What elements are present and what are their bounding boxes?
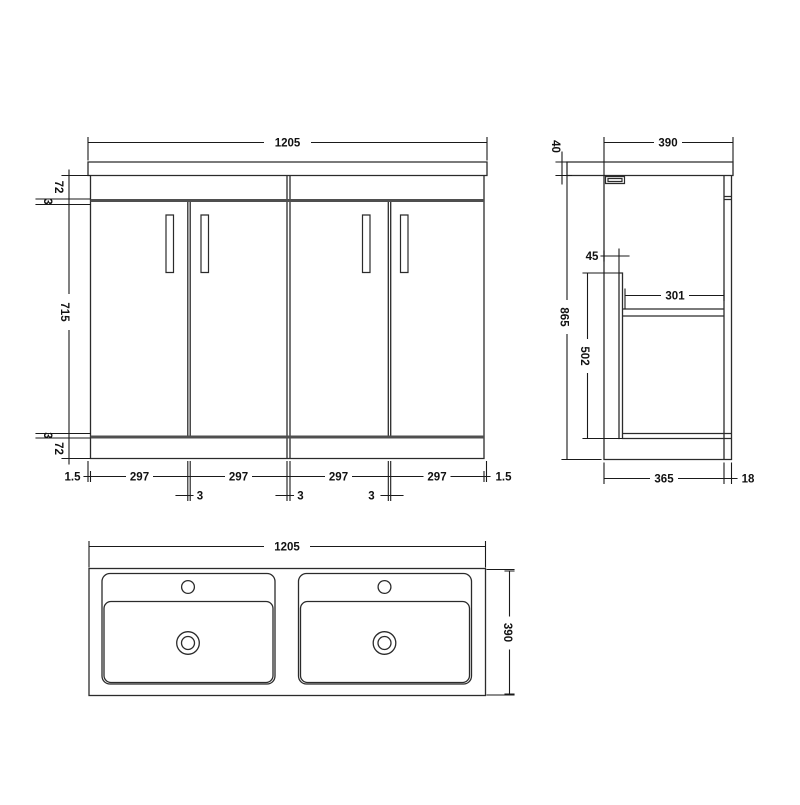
dim-front-edge-left: 1.5 xyxy=(65,472,82,484)
dim-side-cabinet-depth: 365 xyxy=(654,474,674,486)
dim-front-gap-bottom: 3 xyxy=(41,432,53,438)
dim-front-edge-right: 1.5 xyxy=(496,472,513,484)
plan-view: 1205 390 xyxy=(89,540,515,696)
dim-side-worktop-thickness: 40 xyxy=(549,140,561,153)
dim-side-back-panel: 18 xyxy=(742,474,755,486)
dim-side-shelf-depth: 301 xyxy=(665,291,685,303)
dim-front-door-gap-1: 3 xyxy=(197,491,203,503)
side-dimension-lines xyxy=(556,138,737,484)
dim-front-door-width-4: 297 xyxy=(427,472,446,484)
dim-front-door-height: 715 xyxy=(58,302,70,322)
dim-plan-width: 1205 xyxy=(274,542,300,554)
dim-front-door-gap-3: 3 xyxy=(368,491,374,503)
plan-bowl-left xyxy=(104,602,273,683)
front-dim-text-backgrounds xyxy=(58,140,451,484)
drawing-canvas: 1205 72 3 715 3 72 1.5 297 297 297 297 1… xyxy=(0,0,800,800)
dim-front-top-rail: 72 xyxy=(52,181,64,194)
plan-tap-hole-right xyxy=(378,581,391,594)
side-section-view: 390 40 865 45 301 502 365 18 xyxy=(549,138,755,486)
dim-plan-depth: 390 xyxy=(501,623,513,642)
front-elevation-view: 1205 72 3 715 3 72 1.5 297 297 297 297 1… xyxy=(36,138,512,503)
side-cabinet-outline xyxy=(567,162,733,460)
front-dimension-lines xyxy=(36,138,490,501)
dim-front-door-width-2: 297 xyxy=(229,472,248,484)
dim-side-internal-height: 502 xyxy=(578,346,590,365)
dim-front-plinth: 72 xyxy=(52,442,64,455)
plan-drain-outer-right xyxy=(373,632,396,655)
side-handle-profile xyxy=(606,177,625,184)
dim-front-gap-top: 3 xyxy=(41,198,53,204)
dim-front-door-width-1: 297 xyxy=(130,472,149,484)
dim-side-overall-height: 865 xyxy=(558,307,570,327)
plan-bowl-right xyxy=(301,602,470,683)
front-cabinet-outline xyxy=(88,162,487,459)
plan-drain-outer-left xyxy=(177,632,200,655)
dim-front-width: 1205 xyxy=(275,138,301,150)
plan-worktop-outline xyxy=(89,569,486,696)
plan-drain-inner-right xyxy=(378,637,391,650)
plan-drain-inner-left xyxy=(182,637,195,650)
dim-front-door-width-3: 297 xyxy=(329,472,348,484)
dim-side-depth: 390 xyxy=(658,138,677,150)
vanity-technical-drawing: 1205 72 3 715 3 72 1.5 297 297 297 297 1… xyxy=(0,0,800,800)
plan-basin-right xyxy=(299,574,472,685)
dim-side-front-clearance: 45 xyxy=(586,251,599,263)
plan-dimension-lines xyxy=(89,542,514,696)
plan-basin-left xyxy=(102,574,275,685)
plan-tap-hole-left xyxy=(182,581,195,594)
dim-front-door-gap-2: 3 xyxy=(297,491,303,503)
